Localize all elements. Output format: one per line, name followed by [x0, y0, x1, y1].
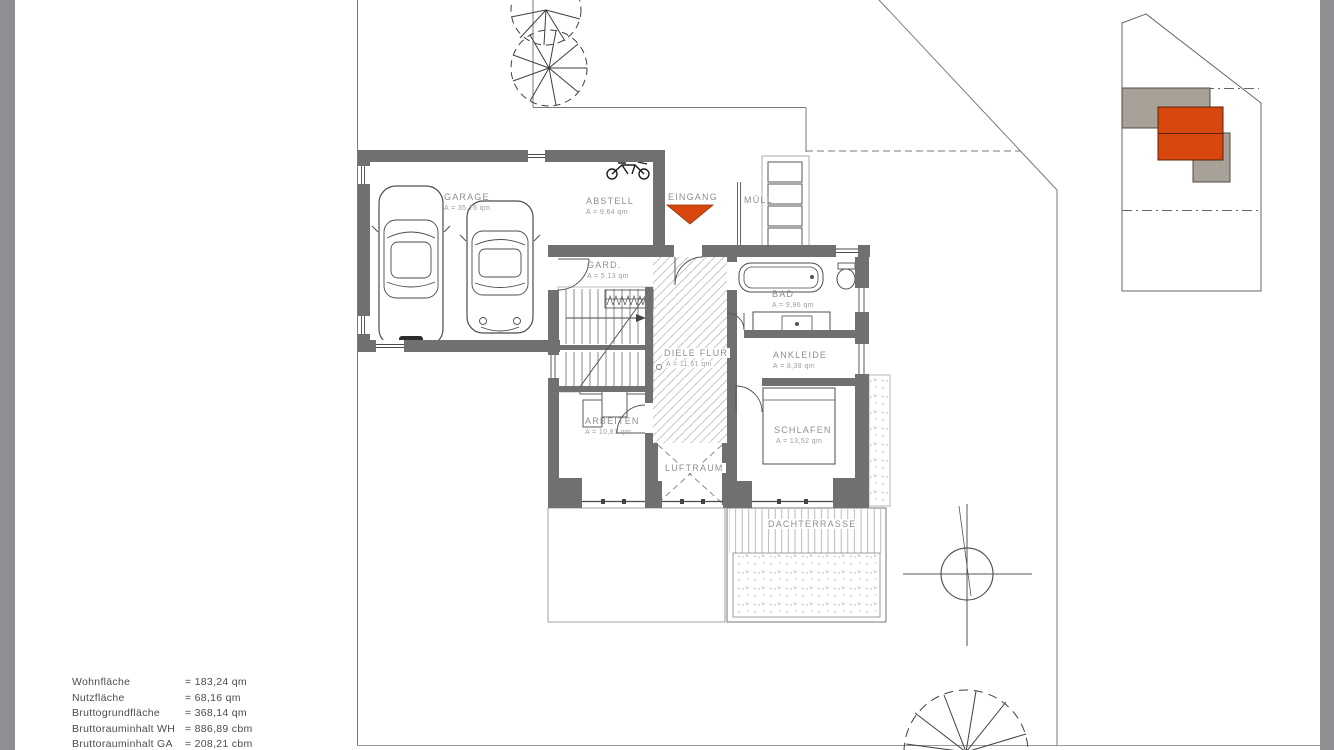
bottom-glazing	[582, 499, 833, 504]
legend-label: Bruttogrundfläche	[72, 707, 185, 719]
abstell-label: ABSTELL	[586, 196, 634, 206]
staircase-icon	[558, 287, 653, 392]
floor-plan-canvas: GARAGE A = 35,76 qm ABSTELL A = 9,64 qm …	[0, 0, 1334, 750]
bathtub-icon	[739, 263, 823, 292]
garage-car-1	[372, 186, 450, 346]
garage-label: GARAGE	[444, 192, 490, 202]
area-legend: Wohnfläche = 183,24 qm Nutzfläche = 68,1…	[72, 676, 253, 750]
tree-icon-top-2	[511, 30, 587, 106]
legend-value: = 208,21 cbm	[185, 738, 253, 750]
viewer-left-bar	[0, 0, 15, 750]
tree-icon-bottom	[904, 690, 1028, 750]
arbeiten-area: A = 10,81 qm	[585, 429, 631, 436]
diele-flur-label: DIELE FLUR	[662, 348, 730, 358]
bicycle-icon	[607, 162, 649, 179]
floor-plan-drawing	[0, 0, 1334, 750]
terrace-gravel	[733, 553, 880, 617]
legend-value: = 886,89 cbm	[185, 723, 253, 735]
gard-area: A = 5,13 qm	[587, 273, 629, 280]
luftraum-cross	[658, 445, 722, 503]
eingang-label: EINGANG	[668, 192, 718, 202]
legend-value: = 68,16 qm	[185, 692, 241, 704]
site-plan-mini-map	[1122, 14, 1261, 291]
toilet-icon	[837, 263, 855, 289]
entrance-arrow-icon	[667, 205, 713, 224]
ankleide-label: ANKLEIDE	[773, 350, 827, 360]
schlafen-area: A = 13,52 qm	[776, 438, 822, 445]
schlafen-label: SCHLAFEN	[774, 425, 832, 435]
garage-car-2	[460, 201, 540, 333]
legend-label: Bruttorauminhalt GA	[72, 738, 185, 750]
garage-area: A = 35,76 qm	[444, 205, 490, 212]
luftraum-label: LUFTRAUM	[663, 463, 726, 473]
label-leader-dot	[657, 365, 662, 370]
legend-label: Nutzfläche	[72, 692, 185, 704]
lower-level-outline	[548, 508, 725, 622]
abstell-area: A = 9,64 qm	[586, 209, 628, 216]
bad-label: BAD	[772, 289, 794, 299]
legend-label: Wohnfläche	[72, 676, 185, 688]
legend-row: Bruttorauminhalt GA = 208,21 cbm	[72, 738, 253, 750]
legend-row: Wohnfläche = 183,24 qm	[72, 676, 253, 692]
bad-area: A = 9,96 qm	[772, 302, 814, 309]
arbeiten-label: ARBEITEN	[585, 416, 640, 426]
tree-icon-top-1	[511, 0, 581, 45]
gard-label: GARD.	[587, 260, 622, 270]
legend-label: Bruttorauminhalt WH	[72, 723, 185, 735]
legend-row: Bruttogrundfläche = 368,14 qm	[72, 707, 253, 723]
entry-railing	[738, 182, 741, 252]
legend-value: = 183,24 qm	[185, 676, 247, 688]
legend-row: Nutzfläche = 68,16 qm	[72, 692, 253, 708]
muell-label: MÜLL	[744, 195, 773, 205]
terrace-decking	[729, 509, 884, 553]
viewer-right-bar	[1320, 0, 1334, 750]
diele-flur-area: A = 11,61 qm	[664, 361, 714, 368]
legend-value: = 368,14 qm	[185, 707, 247, 719]
legend-row: Bruttorauminhalt WH = 886,89 cbm	[72, 723, 253, 739]
side-gravel-strip	[869, 375, 890, 506]
dachterrasse-label: DACHTERRASSE	[766, 519, 858, 529]
survey-point-icon	[903, 504, 1032, 646]
ankleide-area: A = 8,38 qm	[773, 363, 815, 370]
